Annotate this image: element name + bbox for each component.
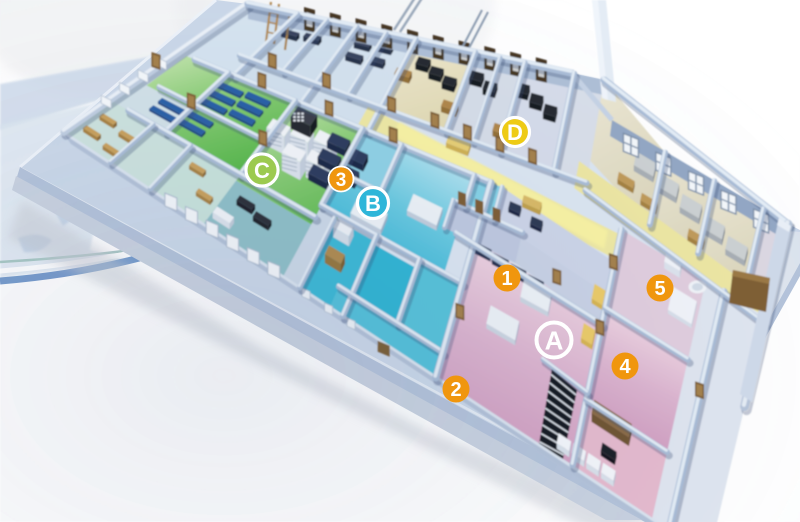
svg-text:B: B	[365, 191, 381, 216]
svg-text:5: 5	[654, 278, 665, 300]
svg-text:4: 4	[619, 356, 631, 378]
svg-text:3: 3	[336, 170, 347, 191]
svg-text:C: C	[254, 158, 270, 183]
svg-text:2: 2	[450, 379, 461, 401]
svg-text:A: A	[545, 325, 564, 355]
svg-text:D: D	[507, 120, 523, 145]
svg-text:1: 1	[501, 268, 512, 290]
